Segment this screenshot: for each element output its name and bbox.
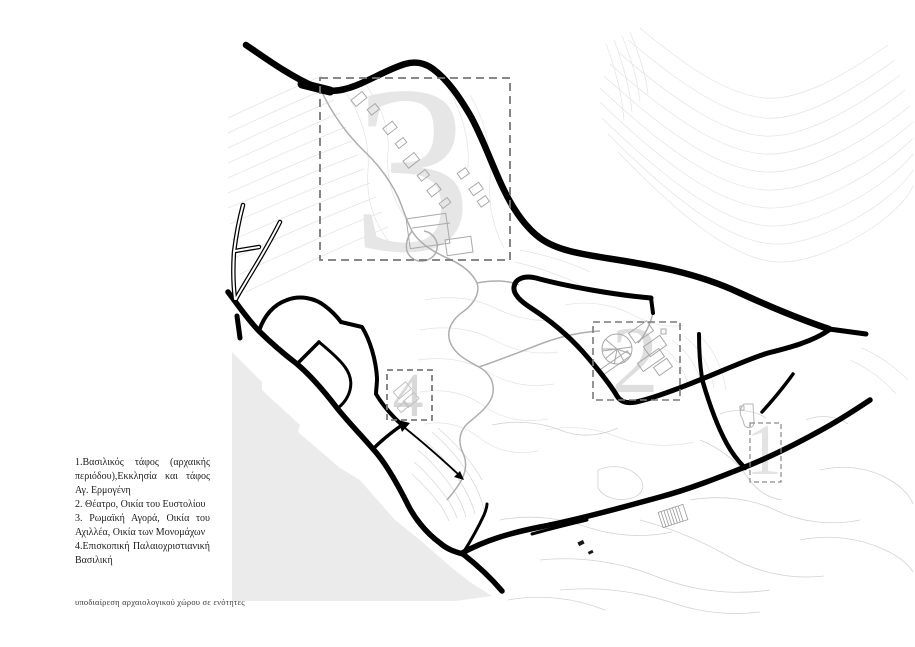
caption: υποδιαίρεση αρχαιολογικού χώρου σε ενότη… <box>75 597 245 607</box>
main-top-road-blob <box>302 84 330 91</box>
block-street-c <box>373 425 402 449</box>
main-top-road <box>246 45 829 329</box>
coast-stub <box>237 316 240 338</box>
block-street-b <box>319 342 351 408</box>
hatched-building <box>658 504 688 527</box>
arc-street <box>259 298 341 331</box>
junction-connector-road <box>702 379 745 468</box>
field-boundary-lines <box>492 411 913 614</box>
legend-item-4: 4.Επισκοπική Παλαιοχριστιανική Βασιλική <box>75 540 210 568</box>
hairpin-road <box>514 277 829 403</box>
zone-1-number: 1 <box>746 410 782 490</box>
block-street-a <box>297 342 319 364</box>
beach-area <box>232 352 492 601</box>
small-buildings <box>577 540 593 555</box>
contour-lines <box>228 28 913 521</box>
direction-arrow <box>405 428 464 480</box>
legend: 1.Βασιλικός τάφος (αρχαικής περιόδου),Εκ… <box>75 456 210 568</box>
legend-item-1: 1.Βασιλικός τάφος (αρχαικής περιόδου),Εκ… <box>75 456 210 498</box>
hairpin-stub <box>651 298 653 313</box>
site-plan-page: 3 2 4 1 <box>0 0 915 647</box>
legend-item-3: 3. Ρωμαϊκή Αγορά, Οικία του Αχιλλέα, Οικ… <box>75 512 210 540</box>
north-stub-road <box>699 334 702 378</box>
road-to-east-end <box>829 329 866 334</box>
legend-item-2: 2. Θέατρο, Οικία του Ευστολίου <box>75 498 210 512</box>
outlined-streets <box>233 205 280 299</box>
short-spur-road <box>762 374 793 412</box>
southeast-diagonal-road <box>462 400 870 553</box>
